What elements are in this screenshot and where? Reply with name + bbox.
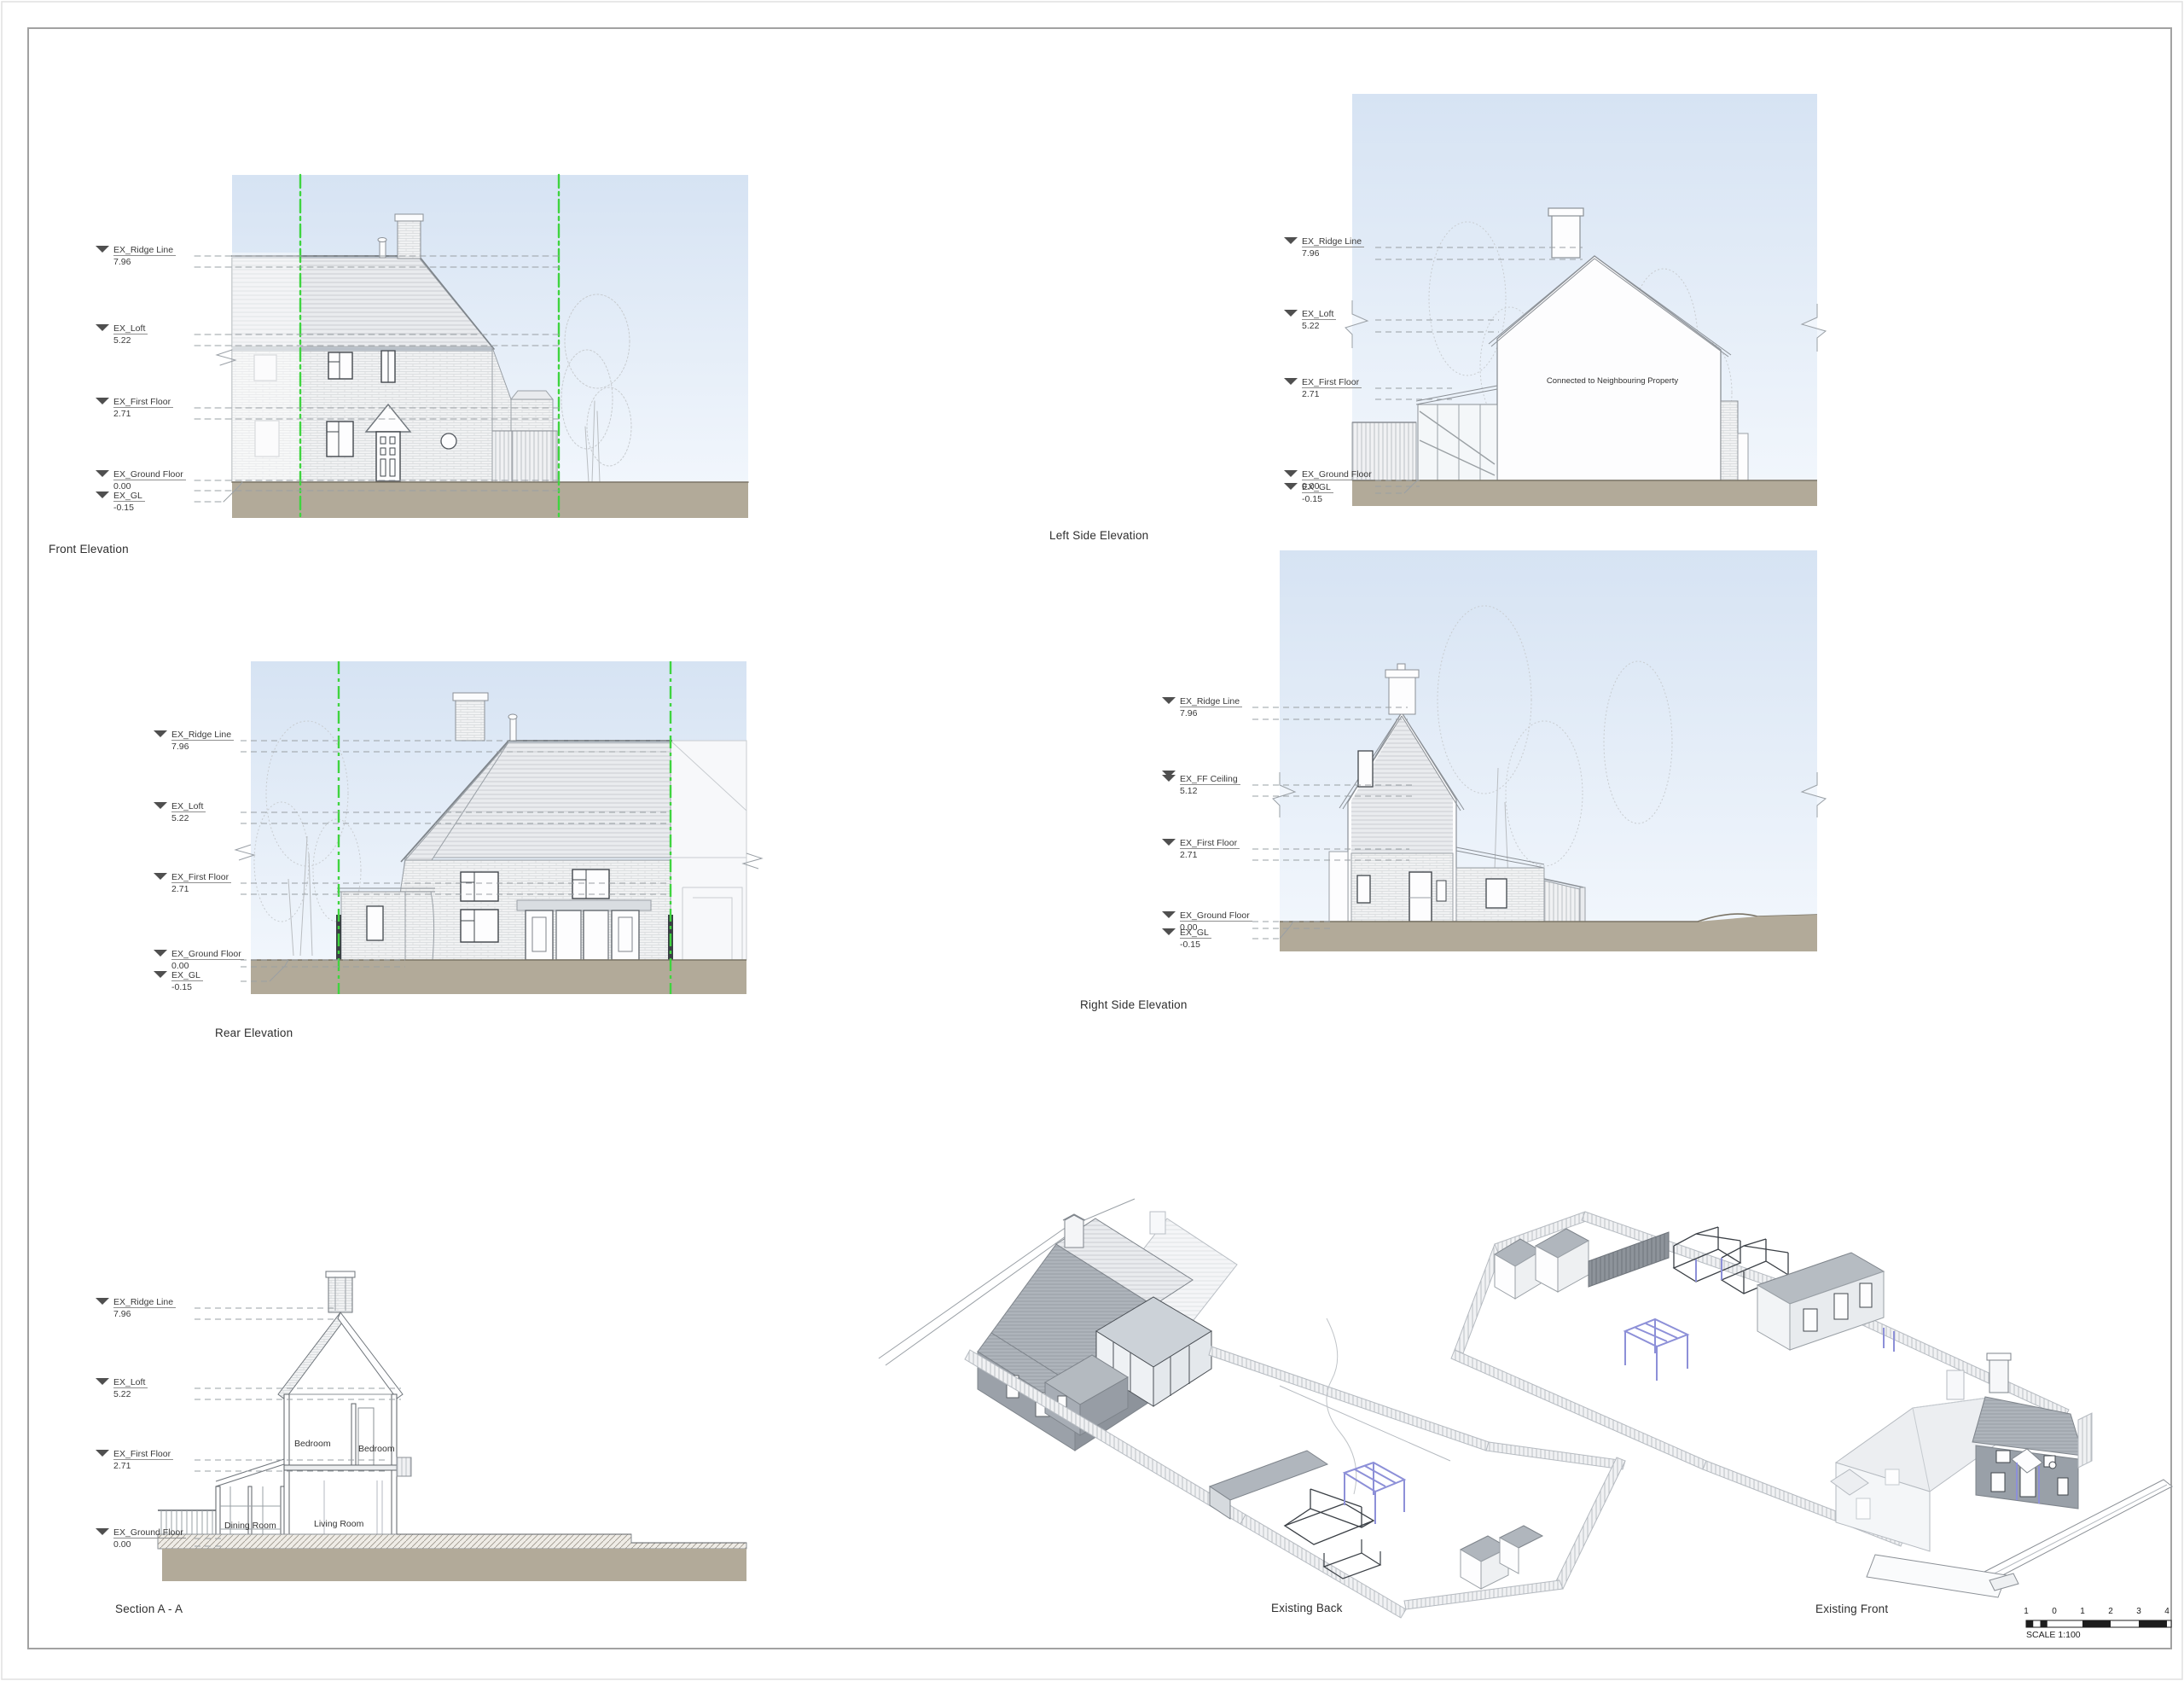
level-triangle-icon bbox=[96, 1298, 109, 1305]
existing-front-axonometric bbox=[1451, 1212, 2172, 1597]
level-triangle-icon bbox=[1284, 310, 1298, 317]
scale-tick: 1 bbox=[2080, 1607, 2085, 1616]
scale-tick: 2 bbox=[2108, 1607, 2113, 1616]
level-marker: EX_Ground Floor0.00 bbox=[154, 949, 244, 971]
level-triangle-icon bbox=[96, 470, 109, 477]
level-triangle-icon bbox=[154, 730, 167, 737]
level-triangle-icon bbox=[1284, 483, 1298, 490]
drawing-sheet: Front Elevation Left Side Elevation Rear… bbox=[0, 0, 2184, 1681]
left-side-elevation-drawing bbox=[1345, 94, 1826, 506]
room-label-bedroom-right: Bedroom bbox=[358, 1444, 395, 1454]
level-triangle-icon bbox=[1284, 237, 1298, 244]
level-marker: EX_First Floor2.71 bbox=[96, 397, 173, 419]
caption-section-aa: Section A - A bbox=[115, 1602, 183, 1615]
level-marker: EX_Ridge Line7.96 bbox=[96, 245, 176, 267]
level-marker: EX_First Floor2.71 bbox=[96, 1449, 173, 1471]
level-marker: EX_Ground Floor0.00 bbox=[96, 469, 186, 492]
caption-existing-back: Existing Back bbox=[1271, 1602, 1343, 1614]
level-triangle-icon bbox=[96, 246, 109, 253]
right-side-elevation-drawing bbox=[1252, 550, 1826, 951]
level-triangle-icon bbox=[96, 324, 109, 331]
level-marker: EX_FF Ceiling5.12 bbox=[1162, 774, 1240, 796]
level-triangle-icon bbox=[154, 971, 167, 978]
caption-existing-front: Existing Front bbox=[1815, 1602, 1888, 1615]
level-triangle-icon bbox=[96, 1528, 109, 1535]
level-marker: EX_Loft5.22 bbox=[96, 323, 148, 346]
rear-elevation-drawing bbox=[235, 661, 762, 994]
front-elevation-drawing bbox=[195, 175, 748, 518]
level-triangle-icon bbox=[96, 398, 109, 404]
room-label-living: Living Room bbox=[314, 1519, 363, 1529]
level-triangle-icon bbox=[1162, 911, 1176, 918]
level-marker: EX_Ridge Line7.96 bbox=[1162, 696, 1242, 718]
level-marker: EX_GL-0.15 bbox=[1284, 482, 1333, 504]
level-triangle-icon bbox=[1162, 697, 1176, 704]
room-label-dining: Dining Room bbox=[224, 1521, 276, 1531]
level-triangle-icon bbox=[154, 950, 167, 957]
level-marker: EX_Ridge Line7.96 bbox=[154, 730, 234, 752]
caption-right-side-elevation: Right Side Elevation bbox=[1080, 998, 1188, 1011]
caption-rear-elevation: Rear Elevation bbox=[215, 1027, 293, 1039]
level-marker: EX_Ground Floor0.00 bbox=[96, 1527, 186, 1550]
level-triangle-icon bbox=[1284, 378, 1298, 385]
level-triangle-icon bbox=[154, 802, 167, 809]
level-marker: EX_GL-0.15 bbox=[154, 970, 203, 992]
scale-tick: 0 bbox=[2052, 1607, 2057, 1616]
level-marker: EX_First Floor2.71 bbox=[1162, 838, 1240, 860]
level-triangle-icon bbox=[1284, 470, 1298, 477]
level-triangle-icon bbox=[96, 492, 109, 498]
level-marker: EX_GL-0.15 bbox=[96, 491, 145, 513]
connected-note: Connected to Neighbouring Property bbox=[1517, 376, 1708, 386]
scale-bar bbox=[2026, 1620, 2171, 1627]
level-triangle-icon bbox=[96, 1450, 109, 1457]
scale-tick: 4 bbox=[2164, 1607, 2169, 1616]
level-triangle-icon bbox=[1162, 839, 1176, 846]
scale-tick: 3 bbox=[2136, 1607, 2141, 1616]
scale-tick: 1 bbox=[2024, 1607, 2029, 1616]
section-aa-drawing bbox=[158, 1271, 746, 1581]
caption-left-side-elevation: Left Side Elevation bbox=[1049, 529, 1148, 542]
level-marker: EX_Loft5.22 bbox=[1284, 309, 1336, 331]
level-triangle-icon bbox=[154, 873, 167, 880]
level-marker: EX_GL-0.15 bbox=[1162, 928, 1211, 950]
scale-label: SCALE 1:100 bbox=[2026, 1630, 2081, 1640]
level-triangle-icon bbox=[96, 1378, 109, 1385]
caption-front-elevation: Front Elevation bbox=[49, 543, 129, 555]
room-label-bedroom-left: Bedroom bbox=[294, 1439, 331, 1449]
level-marker: EX_First Floor2.71 bbox=[154, 872, 231, 894]
level-triangle-icon bbox=[1162, 928, 1176, 935]
level-triangle-icon bbox=[1162, 775, 1176, 782]
level-marker: EX_Loft5.22 bbox=[154, 801, 206, 823]
sheet-linework bbox=[0, 0, 2184, 1681]
level-marker: EX_Ridge Line7.96 bbox=[96, 1297, 176, 1319]
level-marker: EX_Loft5.22 bbox=[96, 1377, 148, 1399]
level-marker: EX_First Floor2.71 bbox=[1284, 377, 1362, 399]
level-marker: EX_Ridge Line7.96 bbox=[1284, 236, 1364, 259]
